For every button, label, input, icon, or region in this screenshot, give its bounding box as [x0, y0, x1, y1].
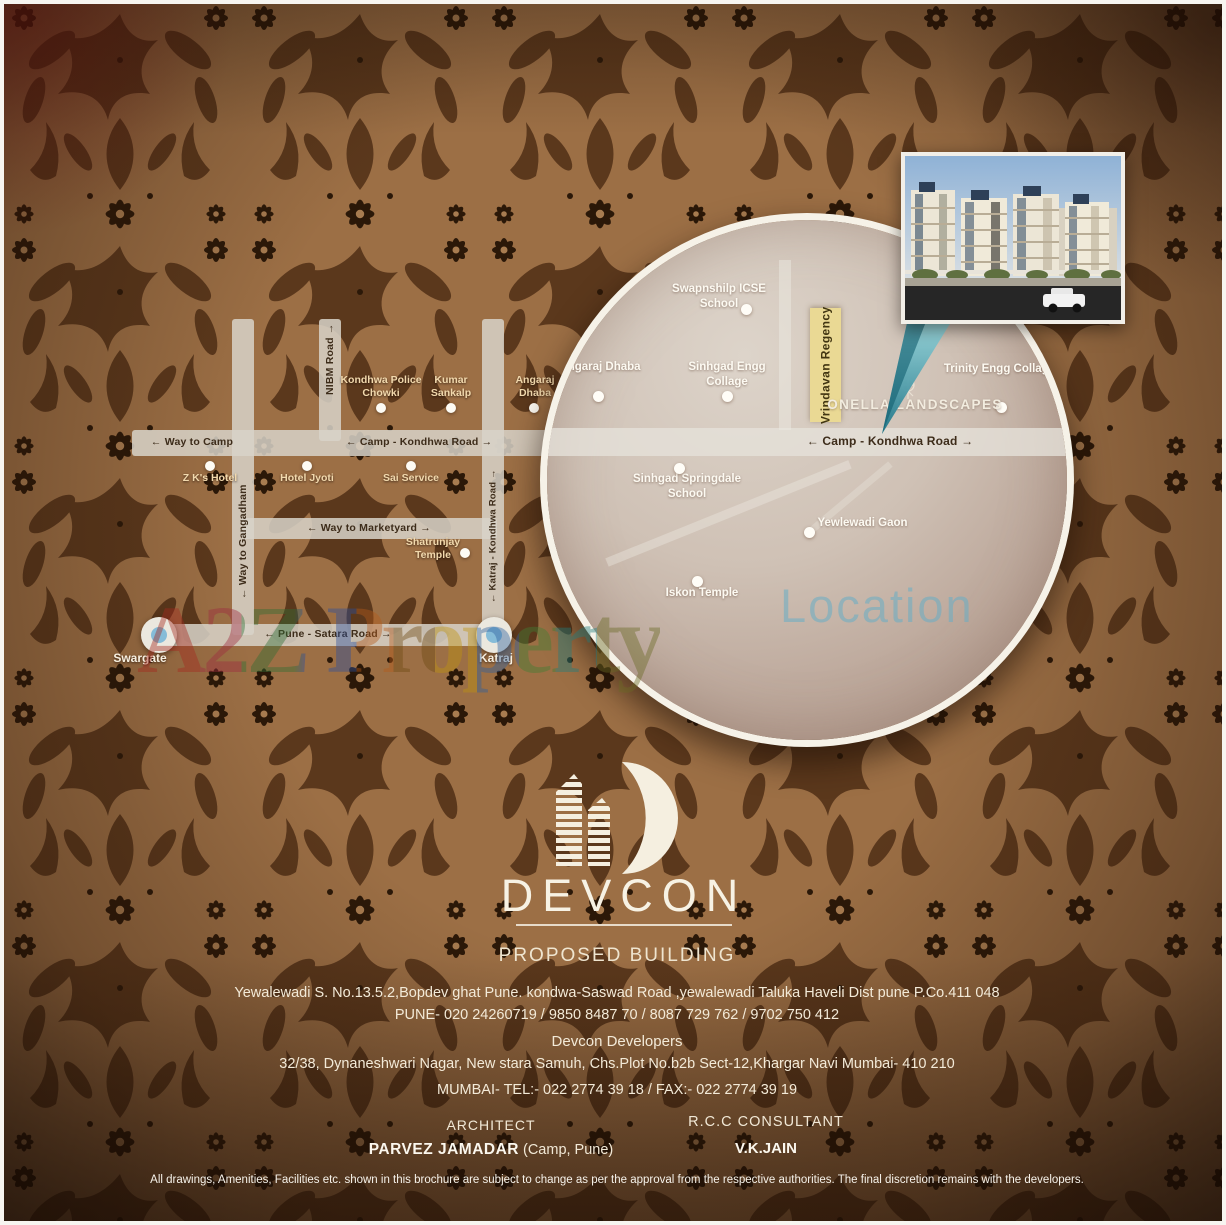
road-label-marketyard: ← Way to Marketyard →: [294, 522, 444, 534]
node-katraj: [476, 617, 512, 653]
developer-name: Devcon Developers: [117, 1033, 1117, 1050]
mumbai-contact: MUMBAI- TEL:- 022 2774 39 18 / FAX:- 022…: [117, 1082, 1117, 1098]
node-angaraj-dhaba-left: [529, 403, 539, 413]
devcon-logo-icon: [522, 758, 726, 878]
disclaimer-text: All drawings, Amenities, Facilities etc.…: [64, 1174, 1170, 1186]
place-zk-hotel: Z K's Hotel: [180, 472, 240, 485]
cplace-yewlewadi: Yewlewadi Gaon: [815, 516, 910, 531]
place-katraj: Katraj: [464, 651, 528, 666]
node-zk-hotel: [205, 461, 215, 471]
place-angaraj-dhaba-left: Angaraj Dhaba: [503, 374, 567, 400]
architect-name-bold: PARVEZ JAMADAR: [369, 1141, 519, 1158]
road-label-katraj-kondhwa: ← Katraj - Kondhwa Road →: [483, 460, 503, 612]
cplace-iskon: Iskon Temple: [657, 586, 747, 601]
node-swargate: [141, 617, 177, 653]
cplace-angaraj-dhaba: Angaraj Dhaba: [555, 360, 645, 375]
devcon-wordmark: DEVCON: [324, 870, 924, 922]
node-hotel-jyoti: [302, 461, 312, 471]
node-shatrunjay-temple: [460, 548, 470, 558]
logo-underline: [516, 924, 732, 926]
building-rendering-photo: [901, 152, 1125, 324]
place-swargate: Swargate: [100, 651, 180, 666]
cplace-sinhgad-engg: Sinhgad Engg Collage: [677, 360, 777, 390]
cnode-springdale: [674, 463, 685, 474]
cnode-sinhgad-engg: [722, 391, 733, 402]
architect-location: (Camp, Pune): [519, 1142, 613, 1158]
location-pointer-icon: [854, 306, 974, 442]
road-label-way-to-camp: ← Way to Camp: [137, 436, 247, 448]
cnode-angaraj-dhaba: [593, 391, 604, 402]
cplace-springdale: Sinhgad Springdale School: [632, 472, 742, 502]
place-hotel-jyoti: Hotel Jyoti: [277, 472, 337, 485]
location-watermark-text: Location: [780, 578, 974, 633]
architect-name: PARVEZ JAMADAR (Camp, Pune): [316, 1141, 666, 1159]
road-label-camp-kondhwa: ← Camp - Kondhwa Road →: [346, 436, 486, 448]
section-title: PROPOSED BUILDING: [117, 945, 1117, 967]
node-sai-service: [406, 461, 416, 471]
architect-title: ARCHITECT: [391, 1117, 591, 1133]
pune-phones: PUNE- 020 24260719 / 9850 8487 70 / 8087…: [117, 1007, 1117, 1023]
rcc-consultant-name: V.K.JAIN: [666, 1140, 866, 1157]
building-rendering-art: [905, 156, 1121, 320]
place-sai-service: Sai Service: [381, 472, 441, 485]
cplace-swapnshilp: Swapnshilp ICSE School: [659, 282, 779, 312]
site-address: Yewalewadi S. No.13.5.2,Bopdev ghat Pune…: [117, 985, 1117, 1001]
road-label-gangadham: ← Way to Gangadham: [233, 476, 253, 608]
node-kumar-sankalp: [446, 403, 456, 413]
circle-road-vertical: [779, 260, 791, 430]
cnode-yewlewadi: [804, 527, 815, 538]
brochure-page: ← Way to Camp ← Camp - Kondhwa Road → NI…: [0, 0, 1226, 1225]
place-police-chowki: Kondhwa Police Chowki: [336, 374, 426, 400]
developer-address: 32/38, Dynaneshwari Nagar, New stara Sam…: [117, 1056, 1117, 1072]
rcc-consultant-title: R.C.C CONSULTANT: [666, 1114, 866, 1130]
road-label-pune-satara: ← Pune - Satara Road →: [252, 628, 404, 640]
place-kumar-sankalp: Kumar Sankalp: [416, 374, 486, 400]
node-police-chowki: [376, 403, 386, 413]
cnode-swapnshilp: [741, 304, 752, 315]
